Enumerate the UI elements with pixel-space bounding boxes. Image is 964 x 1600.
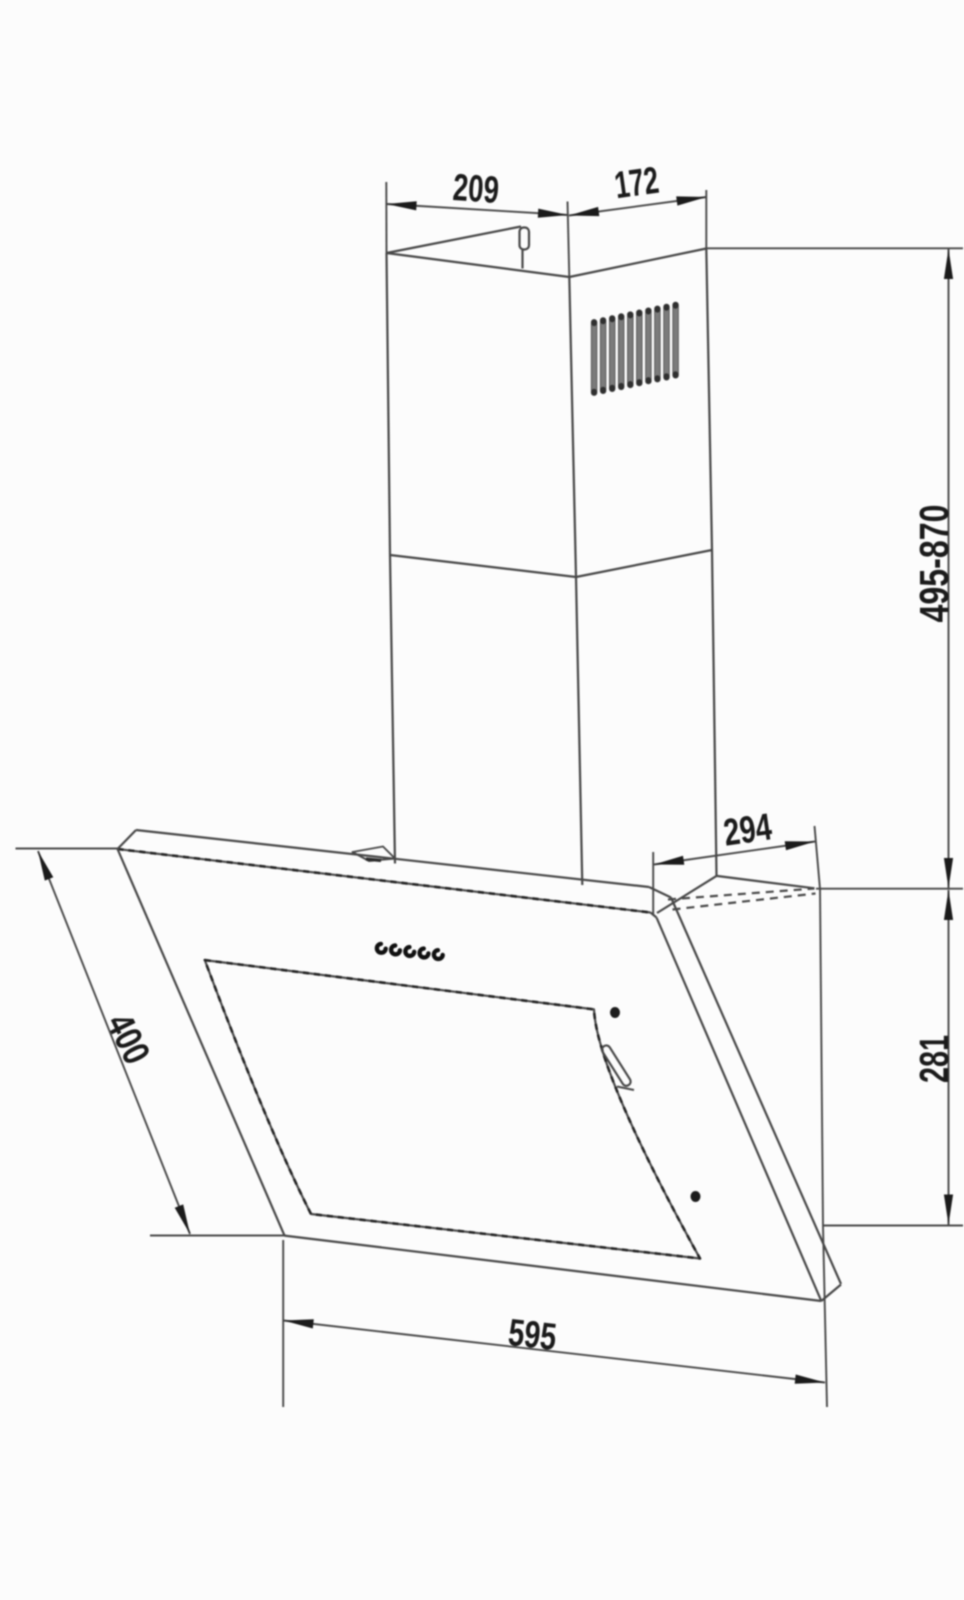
svg-text:172: 172: [612, 160, 661, 208]
svg-text:595: 595: [506, 1312, 558, 1359]
svg-text:209: 209: [451, 167, 500, 212]
svg-text:495-870: 495-870: [911, 505, 957, 623]
svg-text:281: 281: [911, 1035, 957, 1083]
svg-text:294: 294: [721, 806, 774, 854]
